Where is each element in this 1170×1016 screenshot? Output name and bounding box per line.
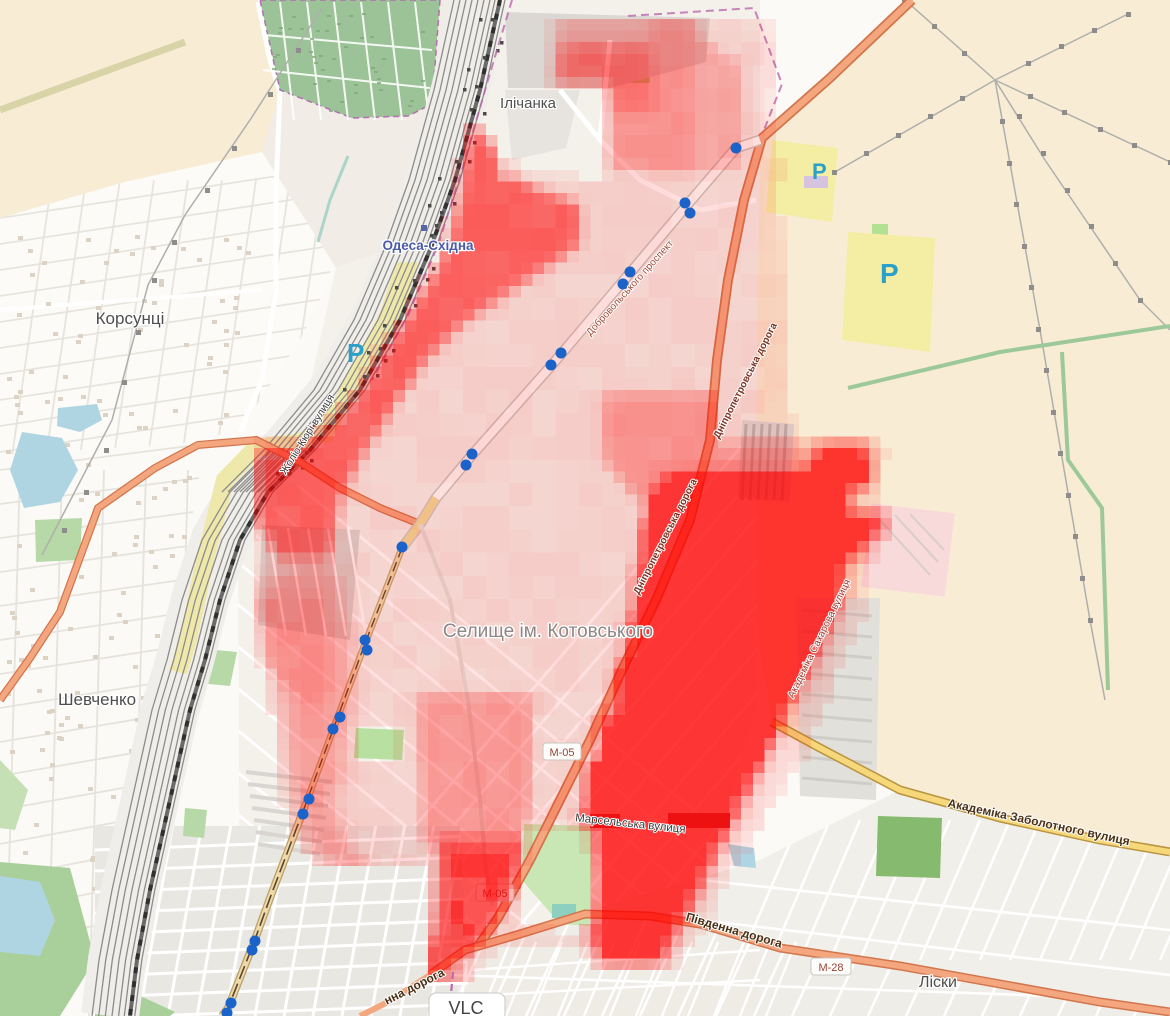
svg-text:Одеса-Східна: Одеса-Східна <box>383 238 474 253</box>
svg-text:Шевченко: Шевченко <box>58 690 136 709</box>
svg-text:P: P <box>347 338 364 368</box>
svg-text:P: P <box>812 159 827 184</box>
svg-text:Корсунці: Корсунці <box>96 309 165 328</box>
svg-text:М-28: М-28 <box>818 962 843 974</box>
svg-text:P: P <box>880 258 899 289</box>
svg-text:VLC: VLC <box>448 998 483 1016</box>
svg-text:Ілічанка: Ілічанка <box>500 95 557 112</box>
svg-text:М-05: М-05 <box>549 747 574 759</box>
svg-text:Селище ім. Котовського: Селище ім. Котовського <box>443 621 653 642</box>
svg-text:Ліски: Ліски <box>919 974 957 991</box>
